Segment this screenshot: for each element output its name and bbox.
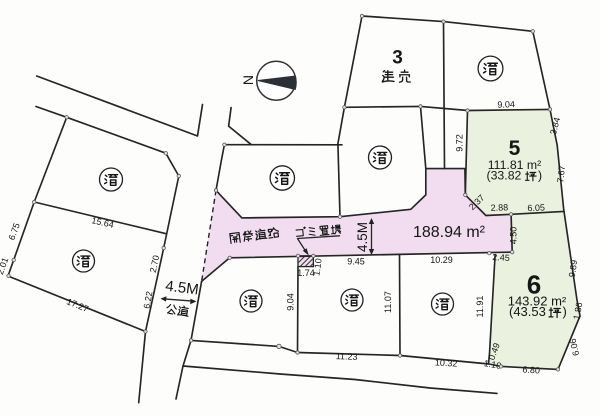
svg-text:3: 3 <box>392 48 403 69</box>
svg-text:10.32: 10.32 <box>435 357 458 368</box>
svg-text:6.80: 6.80 <box>522 364 540 375</box>
svg-text:11.07: 11.07 <box>383 291 393 313</box>
svg-text:): ) <box>538 169 542 183</box>
svg-text:2.88: 2.88 <box>490 202 508 213</box>
svg-text:(33.82: (33.82 <box>487 169 522 183</box>
svg-text:): ) <box>563 304 567 319</box>
svg-text:2.45: 2.45 <box>492 252 510 263</box>
svg-text:11.91: 11.91 <box>475 296 485 318</box>
svg-text:11.23: 11.23 <box>336 351 358 362</box>
svg-text:188.94 m²: 188.94 m² <box>413 224 486 241</box>
svg-text:N: N <box>240 75 256 85</box>
svg-text:7.67: 7.67 <box>555 165 566 183</box>
svg-text:6.05: 6.05 <box>527 202 545 213</box>
svg-text:9.45: 9.45 <box>347 257 365 267</box>
svg-text:9.72: 9.72 <box>455 134 465 152</box>
svg-text:10.29: 10.29 <box>430 255 453 265</box>
svg-text:4.50: 4.50 <box>509 227 519 245</box>
svg-text:5: 5 <box>509 137 521 160</box>
svg-text:4.5M: 4.5M <box>355 222 370 252</box>
svg-text:9.04: 9.04 <box>286 293 296 311</box>
svg-text:(43.53: (43.53 <box>509 304 546 319</box>
svg-text:9.04: 9.04 <box>497 99 515 110</box>
